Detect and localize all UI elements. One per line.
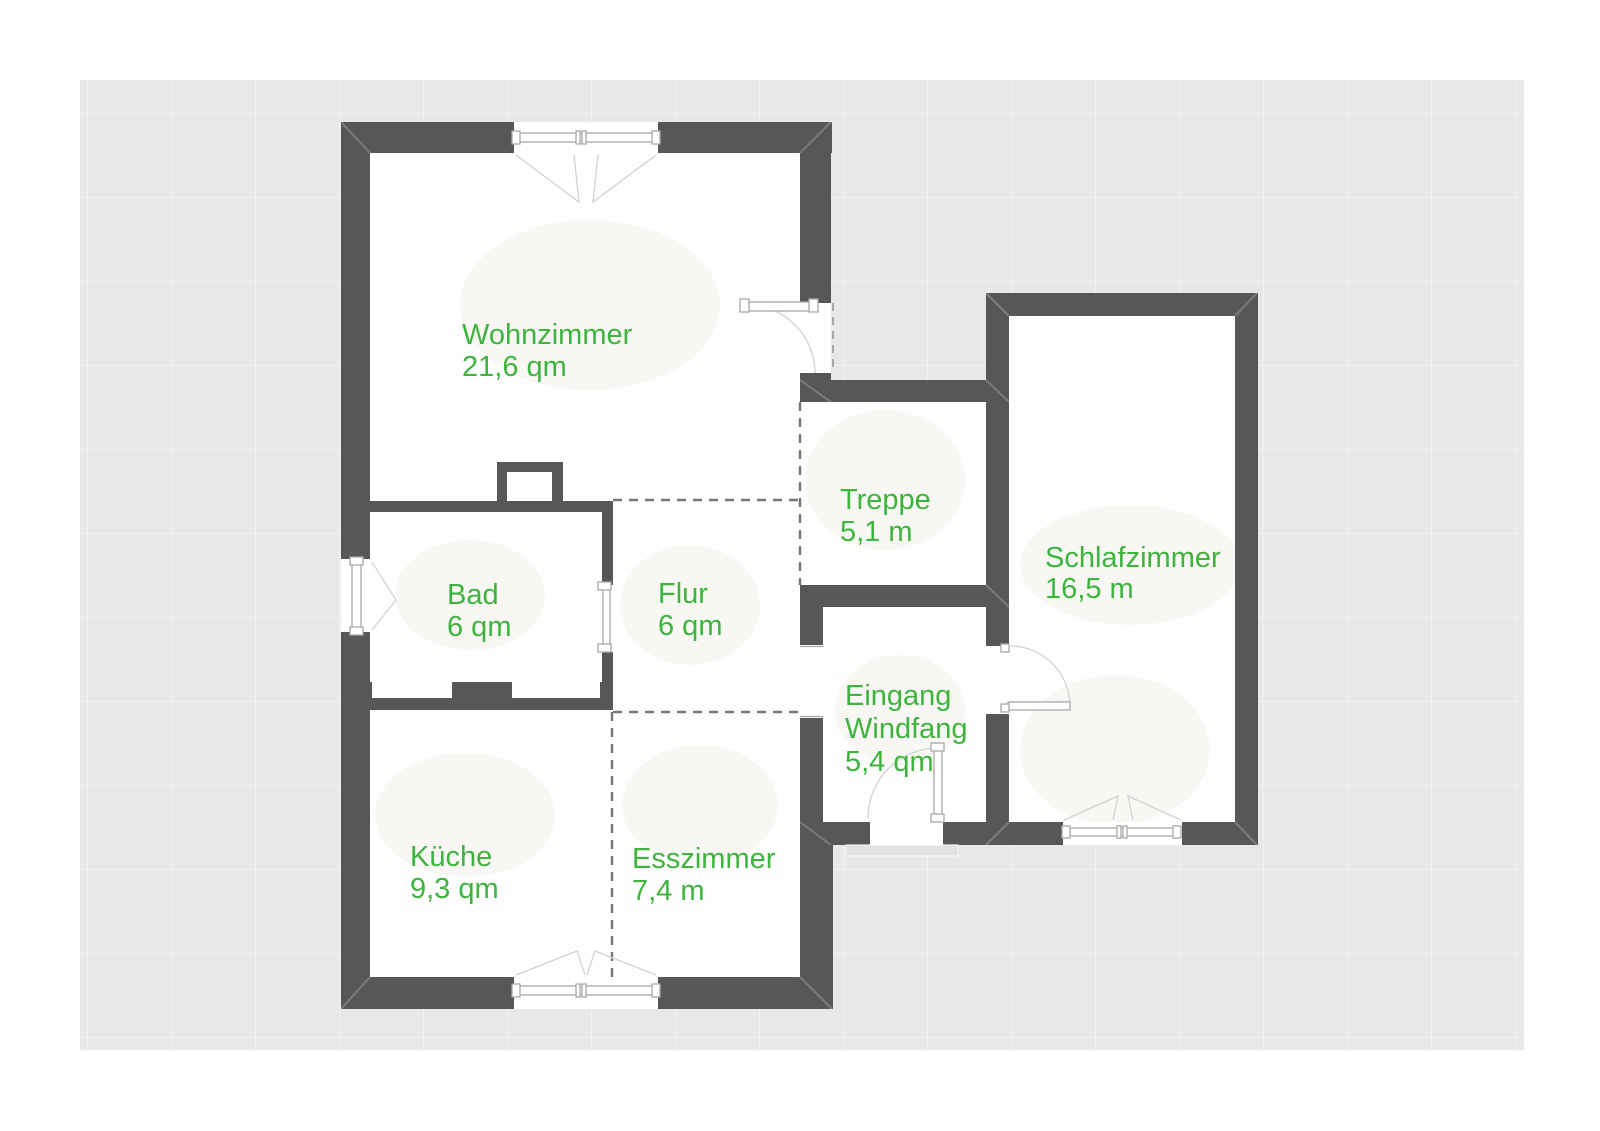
room-area: 5,1 m: [840, 516, 913, 548]
room-name: Windfang: [845, 713, 968, 745]
window-frame-icon: [352, 561, 361, 631]
window-mullion-icon: [576, 131, 580, 144]
wall-schlafzimmer-right: [1235, 316, 1258, 845]
floor-shading: [1020, 675, 1210, 825]
label-flur: Flur 6 qm: [658, 578, 722, 642]
wall-treppe-top: [800, 380, 1009, 402]
wall-bad-right-lower: [602, 652, 613, 682]
room-name: Flur: [658, 578, 708, 610]
wall-eingang-left-upper: [800, 607, 823, 645]
window-mullion-icon: [576, 984, 580, 997]
window-mullion-icon: [582, 131, 586, 144]
window-jamb-icon: [652, 131, 660, 144]
wall-eingang-left-lower: [800, 718, 823, 822]
wall-main-right-upper: [800, 153, 831, 303]
room-name: Küche: [410, 841, 492, 873]
room-name: Treppe: [840, 484, 931, 516]
window-jamb-icon: [1062, 826, 1070, 838]
window-mullion-icon: [1117, 826, 1121, 838]
room-area: 21,6 qm: [462, 351, 567, 383]
room-name: Wohnzimmer: [462, 319, 633, 351]
door-leaf-icon: [1008, 702, 1070, 710]
bad-wall-niche-left: [372, 682, 452, 698]
wall-bad-top: [370, 501, 613, 512]
wall-schlafzimmer-top: [986, 293, 1258, 316]
door-opening: [800, 303, 831, 373]
wall-esszimmer-right: [800, 845, 833, 977]
door-hinge-icon: [1001, 704, 1009, 712]
door-leaf-icon: [603, 588, 610, 646]
label-kueche: Küche 9,3 qm: [410, 841, 500, 905]
bad-wall-niche-right: [512, 682, 600, 698]
room-area: 6 qm: [658, 610, 722, 642]
window-jamb-icon: [350, 557, 363, 565]
window-jamb-icon: [350, 627, 363, 635]
room-name: Esszimmer: [632, 843, 776, 875]
door-opening: [870, 822, 943, 845]
room-area: 5,4 qm: [845, 746, 934, 778]
window-mullion-icon: [582, 984, 586, 997]
room-area: 16,5 m: [1045, 573, 1134, 605]
window-mullion-icon: [1123, 826, 1127, 838]
window-jamb-icon: [512, 131, 520, 144]
opening-flur-eingang: [800, 645, 823, 718]
door-hinge-icon: [1001, 644, 1009, 652]
window-jamb-icon: [1173, 826, 1181, 838]
room-name: Schlafzimmer: [1045, 542, 1221, 574]
room-area: 9,3 qm: [410, 873, 499, 905]
door-leaf-icon: [745, 302, 817, 311]
room-name: Bad: [447, 579, 499, 611]
room-area: 7,4 m: [632, 875, 705, 907]
room-name: Eingang: [845, 680, 951, 712]
wall-treppe-eingang-divider: [800, 585, 1009, 607]
door-hinge-icon: [740, 299, 749, 312]
door-leaf-icon: [934, 748, 942, 820]
wall-bad-right-upper: [602, 512, 613, 585]
entrance-doorstep: [846, 845, 958, 856]
label-bad: Bad 6 qm: [447, 579, 511, 643]
window-jamb-icon: [512, 984, 520, 997]
wall-opening: [800, 645, 823, 718]
chimney-flue: [507, 472, 552, 501]
window-jamb-icon: [652, 984, 660, 997]
door-jamb-icon: [598, 582, 611, 590]
door-jamb-icon: [598, 644, 611, 652]
floor-plan-page: Wohnzimmer 21,6 qm Treppe 5,1 m Schlafzi…: [0, 0, 1600, 1131]
door-hinge-icon: [931, 814, 944, 822]
room-area: 6 qm: [447, 611, 511, 643]
floor-plan: Wohnzimmer 21,6 qm Treppe 5,1 m Schlafzi…: [0, 0, 1600, 1131]
door-hinge-icon: [809, 299, 818, 312]
